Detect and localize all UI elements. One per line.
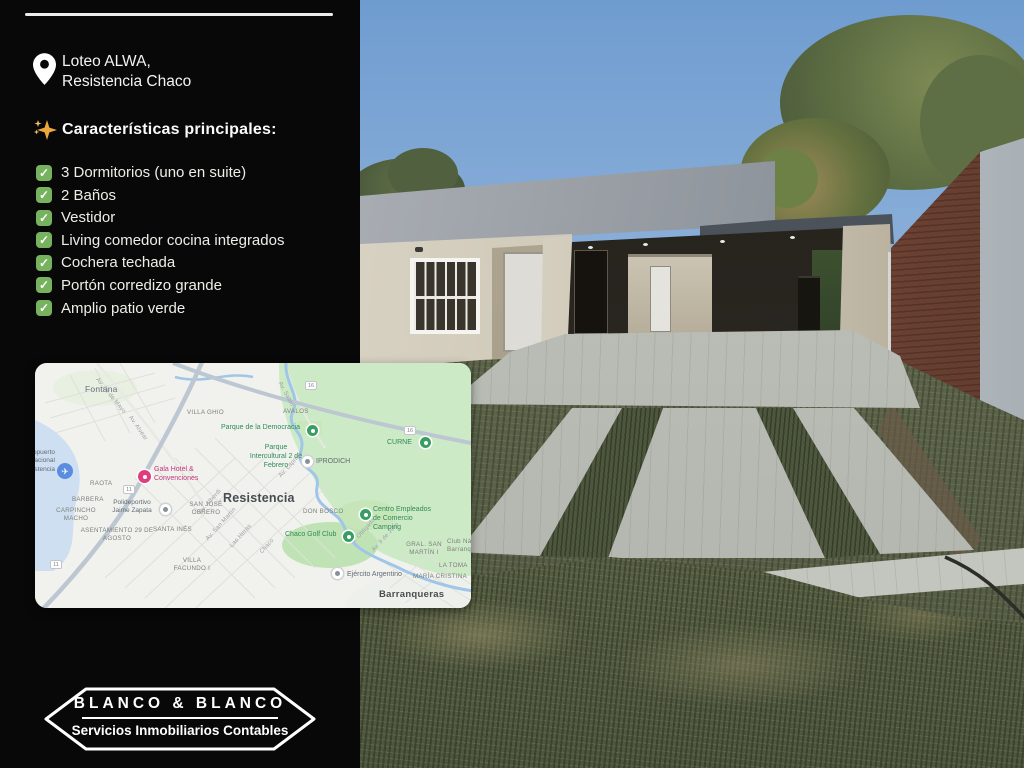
map-label-area: GRAL. SAN MARTÍN I: [401, 541, 447, 557]
map-label-poi: IPRODICH: [316, 457, 350, 466]
logo-badge-outline: [40, 682, 320, 756]
feature-item: ✓Portón corredizo grande: [36, 277, 284, 294]
map-label-hotel: Gala Hotel & Convenciones: [154, 465, 210, 483]
features-title: Características principales:: [62, 121, 277, 139]
feature-item: ✓2 Baños: [36, 187, 284, 204]
route-16-shield: 16: [305, 381, 317, 390]
location-line2: Resistencia Chaco: [62, 72, 191, 92]
logo-underline: [82, 717, 278, 719]
feature-item: ✓Living comedor cocina integrados: [36, 232, 284, 249]
location-line1: Loteo ALWA,: [62, 52, 191, 72]
map-label-city: Barranqueras: [379, 589, 444, 601]
route-11-shield: 11: [50, 560, 62, 569]
map-label-city: Resistencia: [223, 490, 295, 506]
army-icon[interactable]: [332, 568, 343, 579]
svg-text:✈: ✈: [61, 467, 69, 477]
side-doorway: [574, 250, 608, 334]
agency-logo: BLANCO & BLANCO Servicios Inmobiliarios …: [40, 682, 320, 756]
map-label-area: BARBERA: [72, 496, 104, 504]
feature-item: ✓Amplio patio verde: [36, 300, 284, 317]
features-list: ✓3 Dormitorios (uno en suite) ✓2 Baños ✓…: [36, 164, 284, 322]
ceiling-light: [588, 246, 593, 249]
route-11-shield: 11: [123, 485, 135, 494]
garden-hose: [940, 552, 1024, 624]
feature-item: ✓Cochera techada: [36, 254, 284, 271]
sparkle-icon: [32, 117, 58, 143]
window-bars: [414, 262, 476, 330]
feature-item: ✓Vestidor: [36, 209, 284, 226]
location-pin-icon: [33, 53, 56, 85]
divider-line: [25, 13, 333, 16]
park-icon[interactable]: [307, 425, 318, 436]
map-label-area: DON BOSCO: [303, 508, 344, 516]
storage-door: [650, 266, 671, 332]
map-label-poi: Polideportivo Jaime Zapata: [105, 499, 159, 516]
golf-icon[interactable]: [343, 531, 354, 542]
ceiling-light: [720, 240, 725, 243]
check-icon: ✓: [36, 187, 52, 203]
route-16-shield: 16: [404, 426, 416, 435]
chair: [798, 276, 820, 332]
map-label-university: CURNE: [387, 438, 412, 447]
map-label-park: Parque de la Democracia: [221, 423, 300, 432]
university-icon[interactable]: [420, 437, 431, 448]
sports-center-icon[interactable]: [160, 504, 171, 515]
logo-name: BLANCO & BLANCO: [40, 695, 320, 713]
check-icon: ✓: [36, 232, 52, 248]
map-label-area: LA TOMA: [439, 562, 468, 570]
logo-tagline: Servicios Inmobiliarios Contables: [40, 723, 320, 738]
location-map[interactable]: ✈ 16 16 11 11 Fontana Av. 25 de Mayo Av.…: [35, 363, 471, 608]
wall-lamp: [415, 247, 423, 252]
check-icon: ✓: [36, 210, 52, 226]
map-label-army: Ejército Argentino: [347, 570, 402, 579]
map-label-area: RAOTA: [90, 480, 112, 488]
iprodich-icon[interactable]: [302, 456, 313, 467]
map-label-golf: Chaco Golf Club: [285, 530, 336, 539]
ceiling-light: [643, 243, 648, 246]
check-icon: ✓: [36, 300, 52, 316]
map-label-camping: Centro Empleados de Comercio Camping: [373, 505, 439, 532]
map-label-area: MARÍA CRISTINA: [413, 573, 467, 581]
camping-icon[interactable]: [360, 509, 371, 520]
map-label-area: VILLA FACUNDO I: [169, 557, 215, 573]
check-icon: ✓: [36, 277, 52, 293]
check-icon: ✓: [36, 165, 52, 181]
map-label-area: Club Náutico Barranqueras: [447, 538, 471, 554]
real-estate-flyer: Loteo ALWA, Resistencia Chaco Caracterís…: [0, 0, 1024, 768]
map-label-area: CARPINCHO MACHO: [51, 507, 101, 523]
ceiling-light: [790, 236, 795, 239]
entry-door: [503, 252, 547, 352]
map-label-area: SANTA INÉS: [153, 526, 192, 534]
map-label-area: VILLA GHIO: [187, 409, 224, 417]
location-text: Loteo ALWA, Resistencia Chaco: [62, 52, 191, 92]
feature-item: ✓3 Dormitorios (uno en suite): [36, 164, 284, 181]
check-icon: ✓: [36, 255, 52, 271]
map-label-airport: Aeropuerto Internacional Resistencia: [35, 449, 55, 474]
map-label-area: ASENTAMIENTO 29 DE AGOSTO: [79, 527, 155, 543]
hotel-icon[interactable]: [138, 470, 151, 483]
map-label-area: AVALOS: [283, 408, 309, 416]
